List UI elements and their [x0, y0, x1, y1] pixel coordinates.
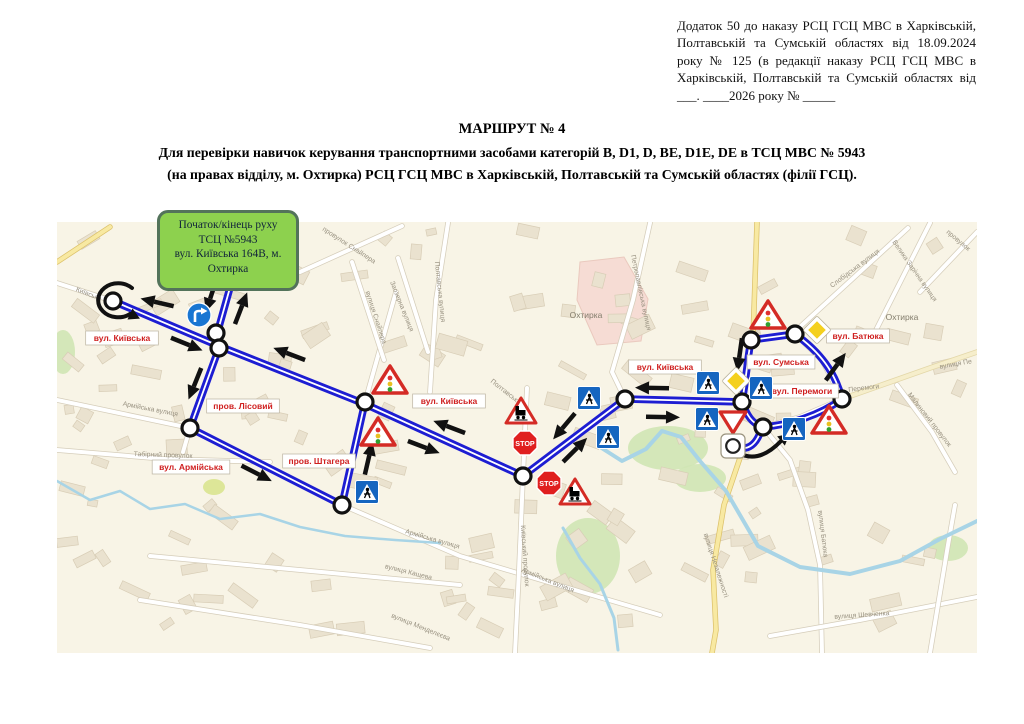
- pedestrian-sign: [750, 377, 773, 400]
- text-line: ___. ____2026 року № _____: [677, 87, 976, 104]
- map-container: Київськапровулок Снайперавулиця Снайпера…: [0, 0, 1024, 724]
- street-label: пров. Лісовий: [213, 401, 272, 411]
- ped-figure-head: [607, 433, 610, 436]
- building: [695, 430, 706, 437]
- roundabout-sign: [721, 434, 745, 458]
- building: [223, 367, 235, 381]
- light-green: [376, 439, 381, 444]
- locomotive-body: [570, 491, 580, 497]
- locomotive-wheel: [516, 416, 519, 419]
- light-yellow: [766, 317, 771, 322]
- street-label: вул. Батюка: [833, 331, 884, 341]
- route-description-line2: (на правах відділу, м. Охтирка) РСЦ ГСЦ …: [40, 167, 984, 183]
- route-number-title: МАРШРУТ № 4: [40, 121, 984, 138]
- turn-right-circle: [187, 303, 211, 327]
- map-street-name: Охтирка: [570, 310, 603, 320]
- street-label: вул. Київська: [94, 333, 151, 343]
- building: [515, 500, 538, 514]
- pedestrian-sign: [578, 387, 601, 410]
- route-map: Київськапровулок Снайперавулиця Снайпера…: [0, 0, 1024, 724]
- locomotive-cab: [570, 487, 574, 491]
- pedestrian-sign: [697, 372, 720, 395]
- building: [99, 385, 117, 392]
- building: [445, 556, 458, 569]
- locomotive-wheel: [570, 497, 573, 500]
- ped-figure-head: [760, 384, 763, 387]
- ped-figure-head: [366, 488, 369, 491]
- street-label: вул. Київська: [421, 396, 478, 406]
- text-line: Харківській, Полтавській та Сумській обл…: [677, 69, 976, 86]
- turn-right-sign: [187, 303, 211, 327]
- text-line: вул. Київська 164В, м.: [160, 247, 296, 262]
- street-label: вул. Київська: [637, 362, 694, 372]
- annex-note: Додаток 50 до наказу РСЦ ГСЦ МВС в Харкі…: [677, 17, 976, 104]
- text-line: Охтирка: [160, 262, 296, 277]
- route-description-line1: Для перевірки навичок керування транспор…: [40, 145, 984, 161]
- route-node: [515, 468, 531, 484]
- pedestrian-sign: [356, 481, 379, 504]
- light-green: [388, 387, 393, 392]
- light-yellow: [388, 382, 393, 387]
- text-line: Полтавській та Сумській областях від 18.…: [677, 34, 976, 51]
- route-node: [182, 420, 198, 436]
- text-line: ТСЦ №5943: [160, 233, 296, 248]
- street-label: вул. Перемоги: [772, 386, 833, 396]
- green-area: [51, 330, 75, 374]
- light-red: [766, 311, 771, 316]
- stop-sign: STOP: [513, 431, 537, 455]
- building: [924, 323, 944, 340]
- route-node: [208, 325, 224, 341]
- building: [311, 579, 331, 592]
- pedestrian-sign: [597, 426, 620, 449]
- street-label: вул. Армійська: [159, 462, 223, 472]
- street-label: вул. Сумська: [753, 357, 809, 367]
- locomotive-wheel: [522, 416, 525, 419]
- pedestrian-sign: [696, 408, 719, 431]
- route-node: [755, 419, 771, 435]
- locomotive-body: [516, 410, 526, 416]
- light-yellow: [827, 422, 832, 427]
- light-green: [766, 322, 771, 327]
- ped-figure-head: [588, 394, 591, 397]
- building: [410, 244, 422, 260]
- route-node: [734, 394, 750, 410]
- map-street-name: Охтирка: [886, 312, 919, 322]
- light-green: [827, 427, 832, 432]
- building: [745, 572, 758, 583]
- route-node: [334, 497, 350, 513]
- roundabout-circle: [726, 439, 740, 453]
- route-node: [211, 340, 227, 356]
- light-red: [827, 416, 832, 421]
- light-red: [388, 376, 393, 381]
- stop-text: STOP: [539, 479, 559, 488]
- ped-figure-head: [707, 379, 710, 382]
- route-node: [357, 394, 373, 410]
- text-line: Початок/кінець руху: [160, 218, 296, 233]
- start-finish-callout: Початок/кінець рухуТСЦ №5943вул. Київськ…: [157, 210, 299, 291]
- route-node: [743, 332, 759, 348]
- text-line: Додаток 50 до наказу РСЦ ГСЦ МВС в Харкі…: [677, 17, 976, 34]
- street-label: пров. Штагера: [288, 456, 349, 466]
- light-yellow: [376, 434, 381, 439]
- building: [617, 614, 633, 628]
- green-area: [203, 479, 225, 495]
- text-line: року № 125 (в редакції наказу РСЦ ГСЦ МВ…: [677, 52, 976, 69]
- pedestrian-sign: [783, 418, 806, 441]
- page-title: МАРШРУТ № 4 Для перевірки навичок керува…: [40, 121, 984, 183]
- building: [601, 474, 622, 485]
- ped-figure-head: [793, 425, 796, 428]
- document-page: Київськапровулок Снайперавулиця Снайпера…: [0, 0, 1024, 724]
- stop-sign: STOP: [537, 471, 561, 495]
- light-red: [376, 428, 381, 433]
- locomotive-wheel: [576, 497, 579, 500]
- route-node: [617, 391, 633, 407]
- route-node: [787, 326, 803, 342]
- building: [615, 294, 631, 307]
- route-node: [105, 293, 121, 309]
- locomotive-cab: [516, 406, 520, 410]
- ped-figure-head: [706, 415, 709, 418]
- stop-text: STOP: [515, 439, 535, 448]
- building: [194, 594, 224, 603]
